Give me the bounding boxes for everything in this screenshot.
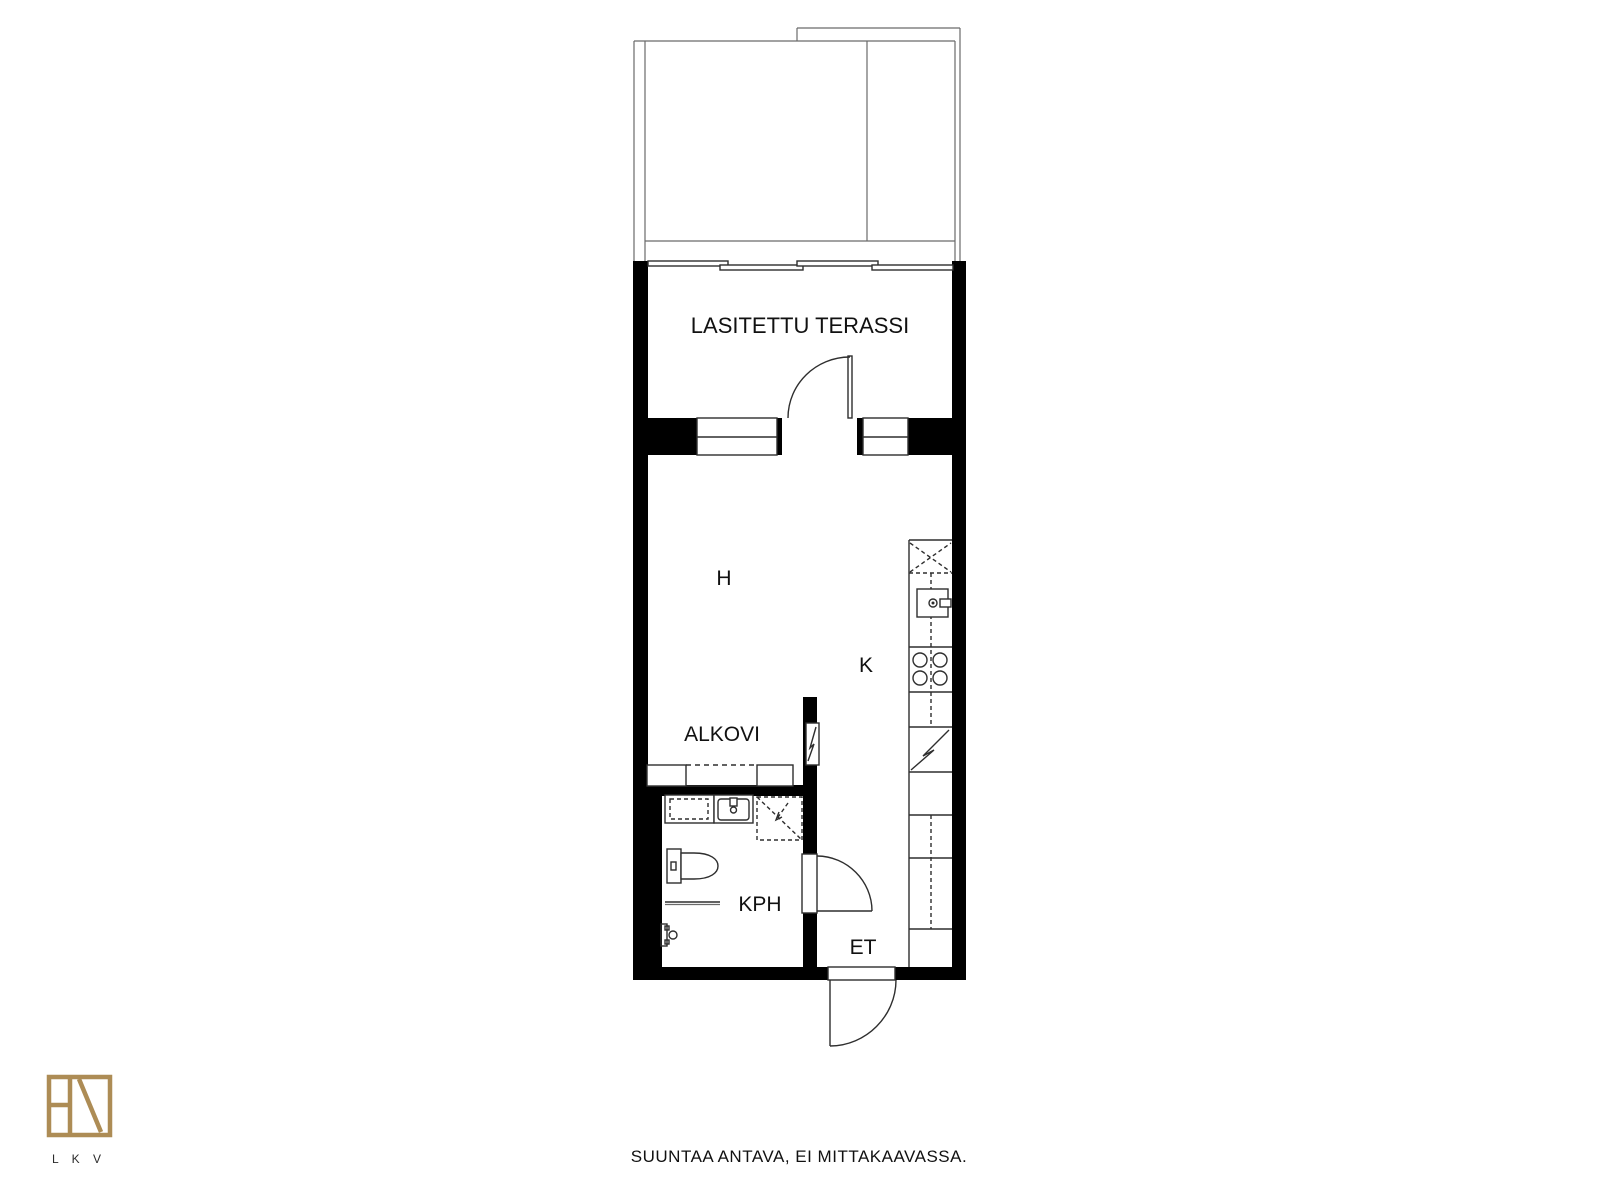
stove-icon [913,653,947,685]
entry-door-icon [828,967,896,1046]
washer-reservation-icon [757,797,802,840]
terrace-door-icon [788,356,852,418]
sliding-glass-wall-icon [648,261,953,270]
terrace-door-opening [782,418,857,455]
room-label-kitchen: K [859,654,873,677]
bathroom-door-icon [802,854,872,913]
room-label-alcove: ALKOVI [684,723,760,746]
terrace-window-left [697,418,777,455]
terrace-window-right [863,418,908,455]
shower-faucet-icon [661,924,677,946]
broker-logo [49,1077,110,1135]
logo-text: L K V [52,1152,106,1166]
shower-rail-icon [665,902,720,905]
kitchen-counter [909,540,952,967]
floor-plan-page: LASITETTU TERASSI H K ALKOVI KPH ET L K … [0,0,1600,1200]
bathroom-sink-icon [714,795,753,823]
footer-note: SUUNTAA ANTAVA, EI MITTAKAAVASSA. [631,1147,967,1166]
dishwasher-icon [911,730,949,770]
room-label-bathroom: KPH [738,893,781,916]
room-label-entry: ET [850,936,877,959]
room-label-main: H [716,567,731,590]
floor-plan-svg: LASITETTU TERASSI H K ALKOVI KPH ET L K … [0,0,1600,1200]
room-label-terrace: LASITETTU TERASSI [691,313,909,338]
fridge-reservation-icon [910,543,951,572]
wardrobe-row-icon [647,765,793,786]
yard-outline [634,28,960,261]
toilet-icon [667,849,718,883]
bathroom-vanity-icon [665,795,714,823]
kitchen-sink-icon [917,589,951,617]
folding-door-icon [806,723,819,765]
